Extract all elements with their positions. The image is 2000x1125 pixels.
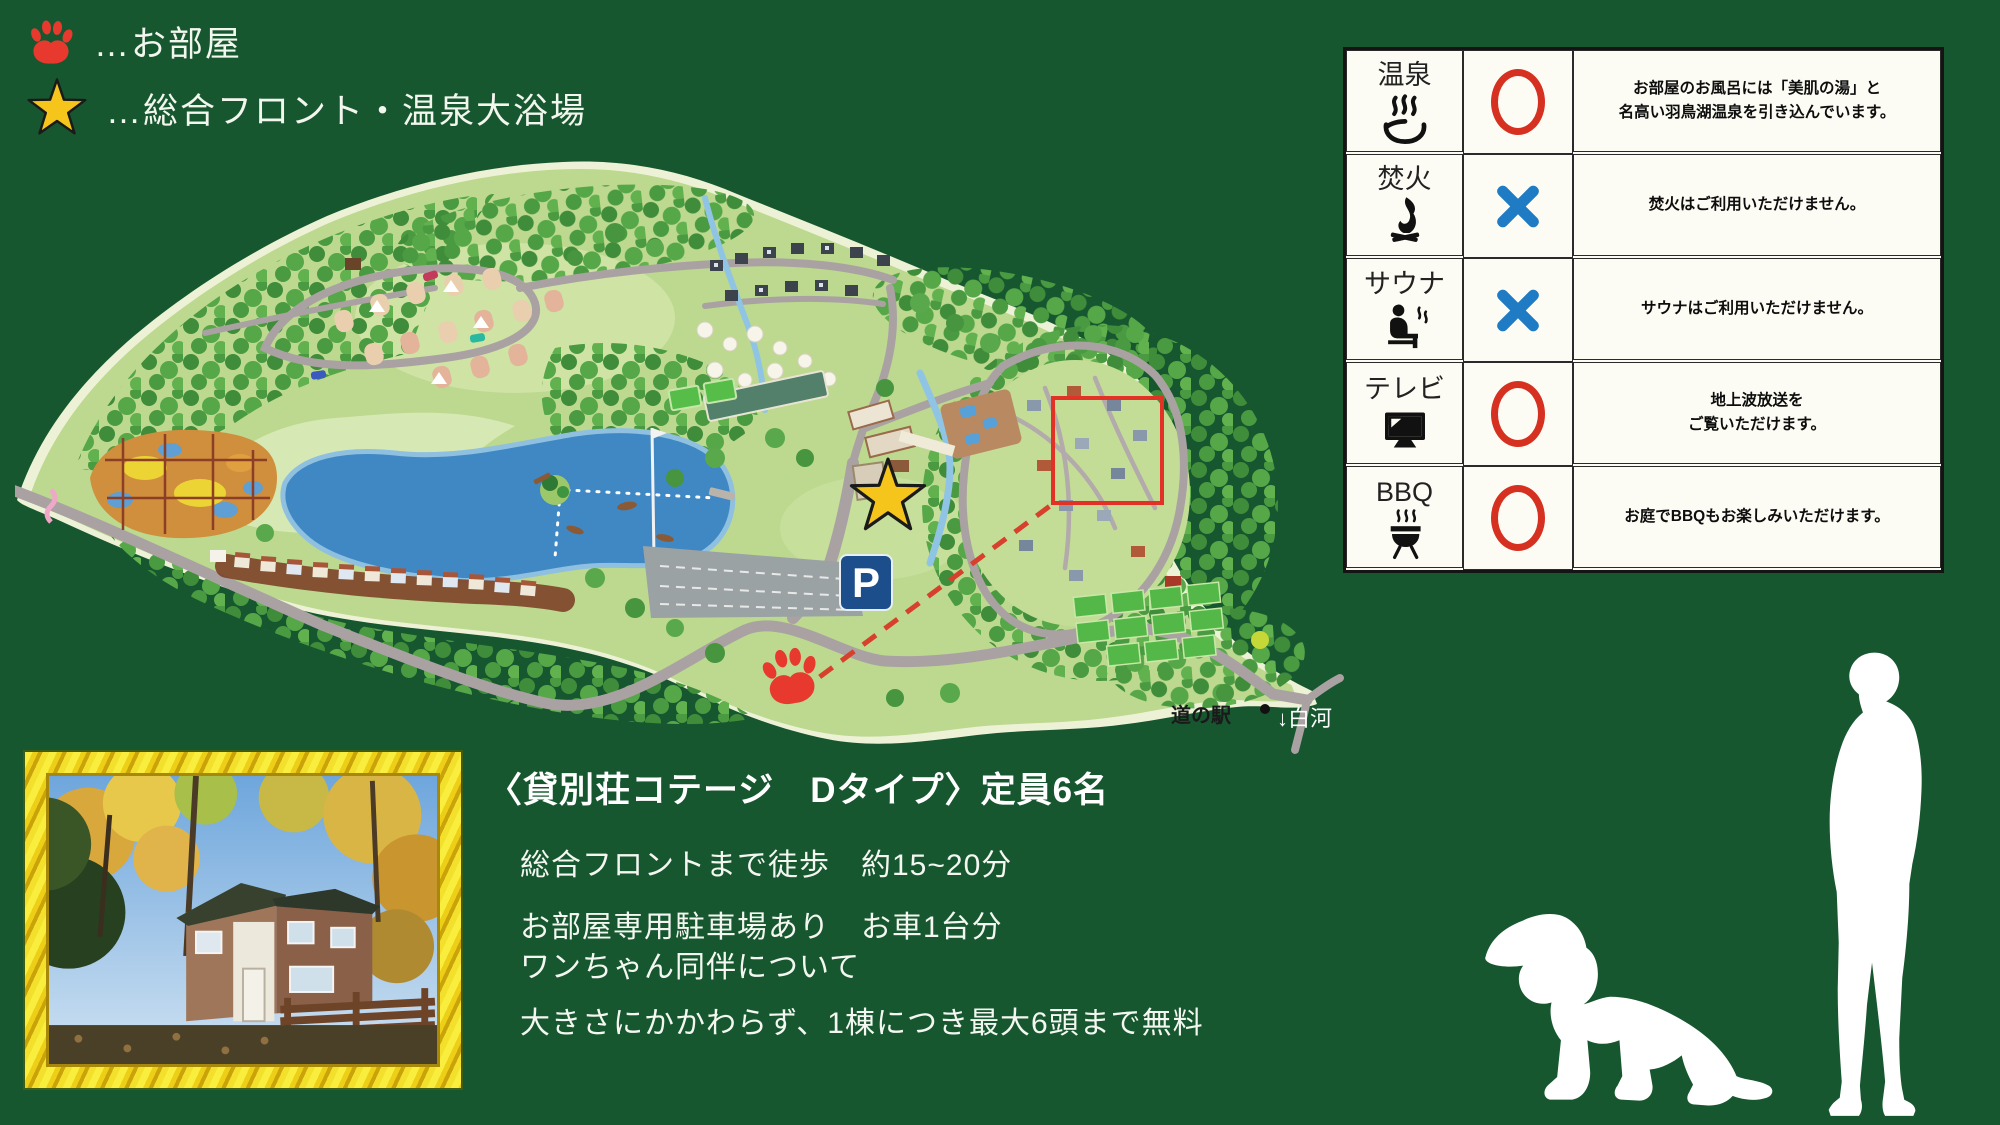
roadside-station-dot (1260, 704, 1270, 714)
amenity-description: 地上波放送を ご覧いただけます。 (1688, 389, 1826, 437)
direction-label: ↓白河 (1277, 706, 1332, 731)
amenity-status-bbq (1463, 466, 1573, 570)
dog-silhouette (1476, 884, 1778, 1120)
legend: …お部屋 …総合フロント・温泉大浴場 (26, 16, 587, 149)
tv-icon (1376, 405, 1434, 455)
legend-item-front: …総合フロント・温泉大浴場 (26, 77, 587, 139)
cottage-photo-frame (23, 750, 463, 1090)
svg-text:P: P (852, 559, 880, 606)
info-line: 総合フロントまで徒歩 約15~20分 (520, 840, 1012, 884)
amenity-description: 焚火はご利用いただけません。 (1649, 193, 1866, 217)
amenity-name-sauna: サウナ (1346, 258, 1463, 360)
amenity-name-bbq: BBQ (1346, 466, 1463, 568)
amenities-table: 温泉 お部屋のお風呂には「美肌の湯」と 名高い羽鳥湖温泉を引き込んでいます。 焚… (1343, 47, 1944, 573)
amenity-name-tv: テレビ (1346, 362, 1463, 464)
amenity-status-onsen (1463, 50, 1573, 154)
paw-icon (26, 17, 76, 67)
cottage-house (176, 883, 380, 1021)
onsen-icon (1376, 91, 1434, 145)
info-line: ワンちゃん同伴について (520, 942, 1204, 986)
amenity-description: お庭でBBQもお楽しみいただけます。 (1624, 505, 1889, 529)
man-silhouette (1803, 650, 1937, 1124)
star-icon (26, 77, 88, 139)
status-mark (1491, 381, 1545, 447)
info-title: 〈貸別荘コテージ Dタイプ〉定員6名 (487, 762, 1109, 813)
status-mark (1490, 282, 1546, 338)
amenity-name-onsen: 温泉 (1346, 50, 1463, 152)
amenity-status-sauna (1463, 258, 1573, 362)
resort-map: P (15, 138, 1350, 766)
amenity-status-tv (1463, 362, 1573, 466)
bonfire-icon (1379, 195, 1431, 249)
parking-lot: P (643, 546, 892, 618)
dog-policy-info: ワンちゃん同伴について 大きさにかかわらず、1棟につき最大6頭まで無料 (520, 942, 1204, 1054)
slide-canvas: …お部屋 …総合フロント・温泉大浴場 (0, 0, 2000, 1125)
status-mark (1491, 485, 1545, 551)
cottage-photo (46, 773, 440, 1067)
status-mark (1490, 178, 1546, 234)
legend-item-room: …お部屋 (26, 16, 587, 67)
info-line: 大きさにかかわらず、1棟につき最大6頭まで無料 (520, 998, 1204, 1042)
info-line: お部屋専用駐車場あり お車1台分 (520, 902, 1012, 946)
amenity-description: サウナはご利用いただけません。 (1641, 297, 1873, 321)
amenity-status-bonfire (1463, 154, 1573, 258)
sauna-icon (1376, 300, 1434, 352)
legend-front-label: …総合フロント・温泉大浴場 (106, 83, 587, 134)
roadside-station-label: 道の駅 (1171, 703, 1231, 727)
amenity-name-bonfire: 焚火 (1346, 154, 1463, 256)
bbq-icon (1378, 508, 1432, 560)
amenity-description: お部屋のお風呂には「美肌の湯」と 名高い羽鳥湖温泉を引き込んでいます。 (1619, 77, 1896, 125)
legend-room-label: …お部屋 (94, 16, 242, 67)
status-mark (1491, 69, 1545, 135)
parking-badge: P (840, 555, 892, 610)
